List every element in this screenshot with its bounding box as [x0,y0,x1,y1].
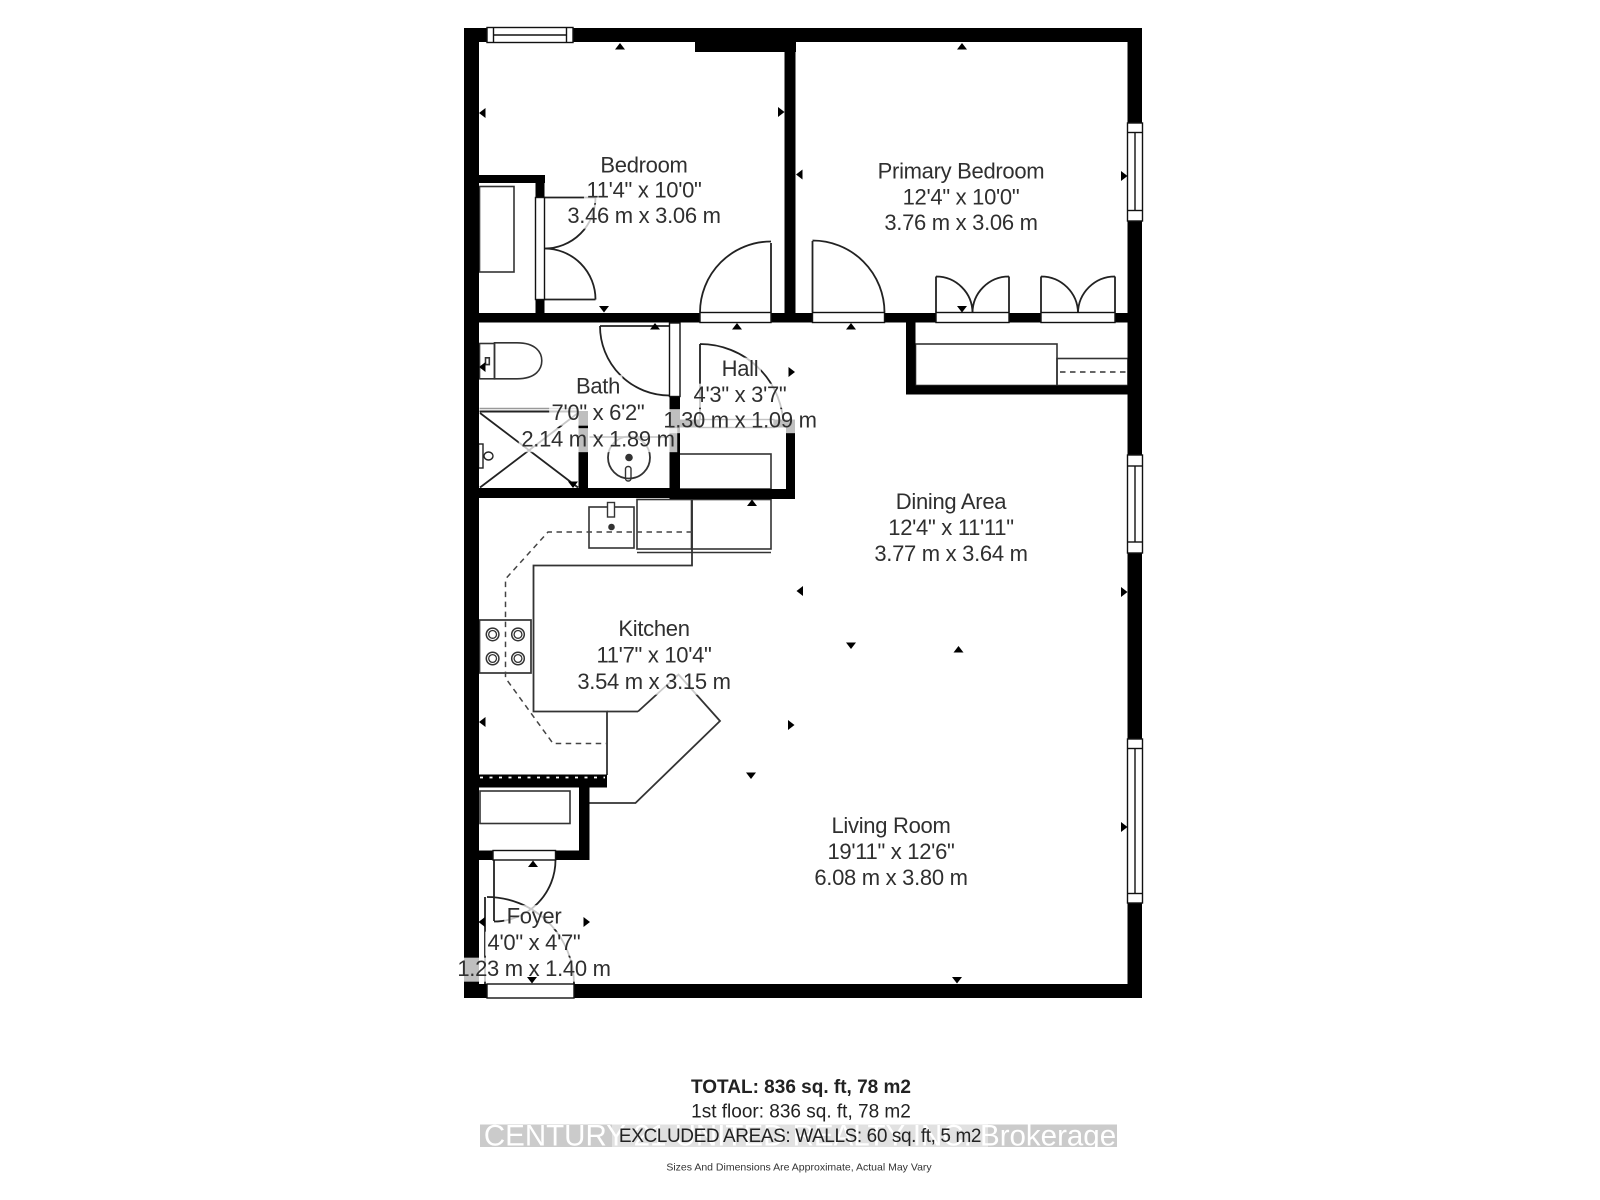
svg-text:Sizes And Dimensions Are Appro: Sizes And Dimensions Are Approximate, Ac… [666,1162,932,1174]
svg-text:Bath: Bath [576,374,620,399]
svg-text:11'7" x 10'4": 11'7" x 10'4" [596,643,711,668]
svg-text:Kitchen: Kitchen [618,616,689,641]
svg-text:3.46 m x 3.06 m: 3.46 m x 3.06 m [567,203,720,228]
svg-text:Bedroom: Bedroom [600,153,687,178]
svg-text:TOTAL: 836 sq. ft, 78 m2: TOTAL: 836 sq. ft, 78 m2 [691,1077,911,1098]
svg-text:7'0" x 6'2": 7'0" x 6'2" [552,400,645,425]
svg-text:12'4" x 11'11": 12'4" x 11'11" [888,515,1013,540]
svg-text:12'4" x 10'0": 12'4" x 10'0" [903,185,1020,210]
svg-text:4'0" x 4'7": 4'0" x 4'7" [488,930,581,955]
svg-text:3.77 m x 3.64 m: 3.77 m x 3.64 m [874,541,1027,566]
svg-text:Hall: Hall [722,356,759,381]
svg-text:6.08 m x 3.80 m: 6.08 m x 3.80 m [814,865,967,890]
svg-text:11'4" x 10'0": 11'4" x 10'0" [586,178,701,203]
svg-text:3.76 m x 3.06 m: 3.76 m x 3.06 m [884,210,1037,235]
svg-text:4'3" x 3'7": 4'3" x 3'7" [694,382,787,407]
svg-text:1st floor: 836 sq. ft, 78 m2: 1st floor: 836 sq. ft, 78 m2 [691,1102,911,1123]
svg-text:Foyer: Foyer [507,904,562,929]
svg-text:1.30 m x 1.09 m: 1.30 m x 1.09 m [663,408,816,433]
svg-text:Primary Bedroom: Primary Bedroom [878,159,1045,184]
svg-text:3.54 m x 3.15 m: 3.54 m x 3.15 m [577,669,730,694]
svg-text:EXCLUDED AREAS: WALLS: 60 sq.: EXCLUDED AREAS: WALLS: 60 sq. ft, 5 m2 [619,1126,981,1147]
svg-text:2.14 m x 1.89 m: 2.14 m x 1.89 m [521,427,674,452]
svg-text:Living Room: Living Room [832,813,951,838]
svg-text:Dining Area: Dining Area [896,489,1008,514]
svg-text:19'11" x 12'6": 19'11" x 12'6" [827,839,954,864]
